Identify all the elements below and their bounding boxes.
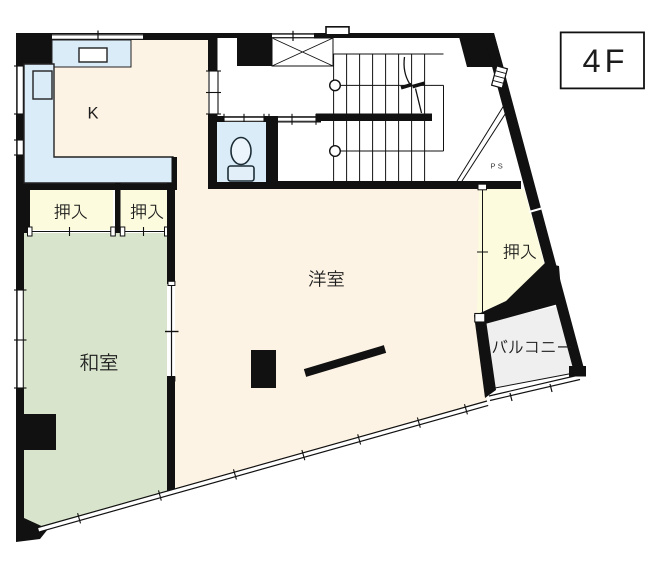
svg-text:K: K bbox=[88, 105, 99, 123]
svg-text:PS: PS bbox=[491, 162, 505, 171]
svg-text:4F: 4F bbox=[583, 43, 629, 79]
